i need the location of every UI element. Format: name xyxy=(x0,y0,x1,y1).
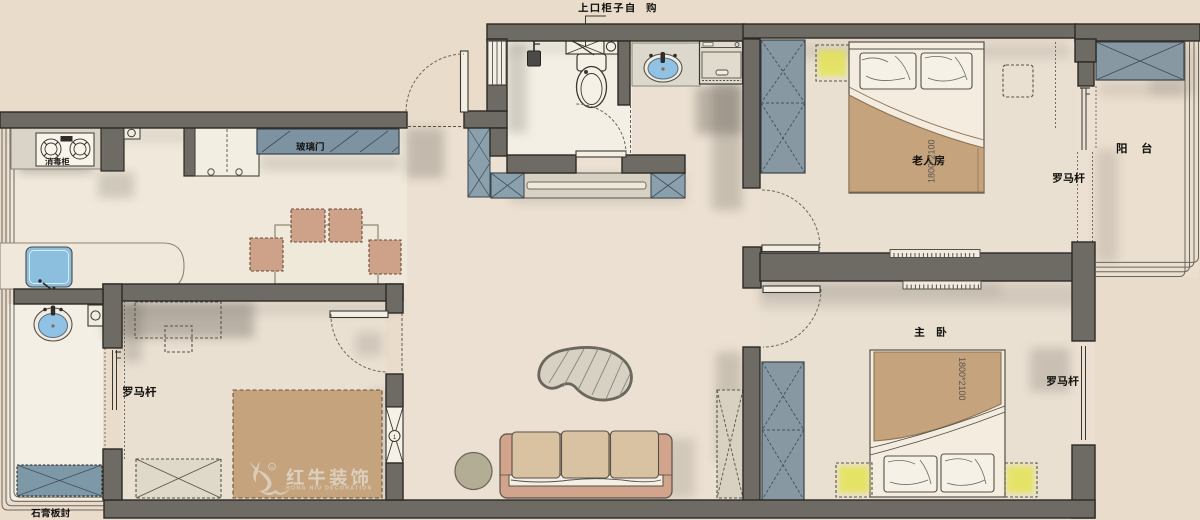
svg-text:1800*2100: 1800*2100 xyxy=(957,357,967,401)
svg-text:1800*2100: 1800*2100 xyxy=(927,139,937,183)
svg-text:R: R xyxy=(270,465,274,471)
svg-text:HONG NIU DECORATION: HONG NIU DECORATION xyxy=(286,486,373,492)
